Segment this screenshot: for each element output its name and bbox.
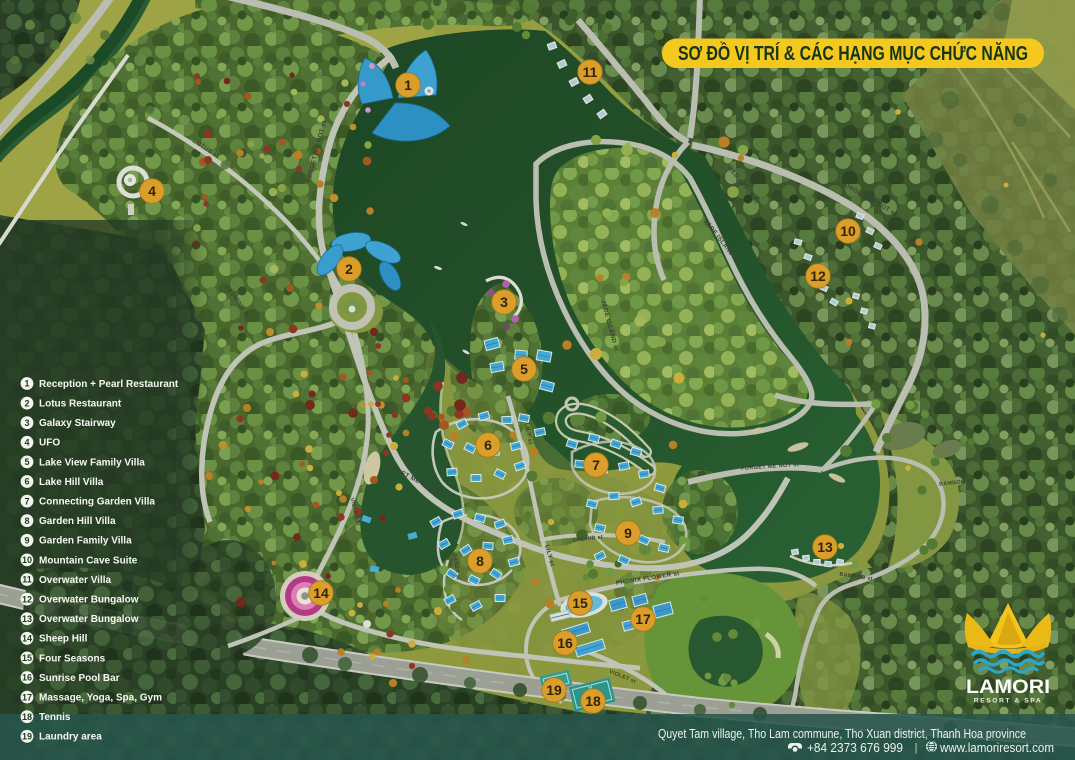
svg-text:Overwater Bungalow: Overwater Bungalow	[39, 595, 139, 606]
svg-text:14: 14	[22, 634, 32, 644]
svg-text:11: 11	[583, 64, 598, 80]
svg-text:4: 4	[24, 438, 29, 448]
svg-text:www.lamoriresort.com: www.lamoriresort.com	[939, 740, 1054, 755]
svg-text:Laundry area: Laundry area	[39, 732, 102, 743]
svg-text:Reception + Pearl Restaurant: Reception + Pearl Restaurant	[39, 379, 179, 390]
svg-text:17: 17	[22, 692, 32, 702]
svg-text:18: 18	[585, 693, 601, 709]
svg-text:Garden Family Villa: Garden Family Villa	[39, 536, 132, 547]
svg-text:Garden Hill Villa: Garden Hill Villa	[39, 516, 116, 527]
svg-text:13: 13	[817, 539, 833, 555]
svg-text:Mountain Cave Suite: Mountain Cave Suite	[39, 555, 138, 566]
svg-text:Lotus Restaurant: Lotus Restaurant	[39, 399, 122, 410]
svg-text:Galaxy Stairway: Galaxy Stairway	[39, 418, 116, 429]
svg-text:Sheep Hill: Sheep Hill	[39, 634, 88, 645]
svg-text:3: 3	[24, 418, 29, 428]
svg-text:17: 17	[635, 611, 651, 627]
svg-text:LAMORI: LAMORI	[966, 677, 1050, 698]
svg-text:7: 7	[592, 457, 600, 473]
svg-text:10: 10	[22, 555, 32, 565]
svg-text:14: 14	[313, 585, 329, 601]
svg-text:15: 15	[22, 653, 32, 663]
svg-text:7: 7	[24, 496, 29, 506]
svg-text:2: 2	[345, 261, 353, 277]
svg-text:15: 15	[572, 595, 588, 611]
svg-text:Four Seasons: Four Seasons	[39, 653, 106, 664]
svg-text:13: 13	[22, 614, 32, 624]
svg-text:9: 9	[24, 536, 29, 546]
svg-text:UFO: UFO	[39, 438, 60, 449]
svg-text:Overwater Bungalow: Overwater Bungalow	[39, 614, 139, 625]
svg-text:2: 2	[24, 398, 29, 408]
svg-text:|: |	[915, 742, 918, 754]
svg-text:RESORT & SPA: RESORT & SPA	[974, 698, 1042, 705]
svg-text:5: 5	[24, 457, 29, 467]
svg-text:+84 2373 676 999: +84 2373 676 999	[807, 740, 903, 755]
svg-text:Lake Hill Villa: Lake Hill Villa	[39, 477, 104, 488]
svg-text:Tennis: Tennis	[39, 712, 71, 723]
svg-text:Lake View Family Villa: Lake View Family Villa	[39, 457, 145, 468]
svg-text:18: 18	[22, 712, 32, 722]
svg-text:11: 11	[22, 575, 32, 585]
svg-text:Overwater Villa: Overwater Villa	[39, 575, 112, 586]
svg-text:9: 9	[624, 525, 632, 541]
svg-text:16: 16	[557, 635, 573, 651]
svg-text:12: 12	[810, 268, 826, 284]
svg-text:SƠ ĐỒ VỊ TRÍ & CÁC HẠNG MỤC CH: SƠ ĐỒ VỊ TRÍ & CÁC HẠNG MỤC CHỨC NĂNG	[678, 41, 1028, 65]
svg-text:Sunrise Pool Bar: Sunrise Pool Bar	[39, 673, 120, 684]
svg-text:6: 6	[24, 477, 29, 487]
svg-text:19: 19	[22, 732, 32, 742]
svg-text:3: 3	[500, 294, 508, 310]
svg-text:19: 19	[546, 682, 562, 698]
svg-text:Connecting Garden Villa: Connecting Garden Villa	[39, 497, 155, 508]
svg-text:8: 8	[24, 516, 29, 526]
svg-text:Massage, Yoga, Spa, Gym: Massage, Yoga, Spa, Gym	[39, 693, 162, 704]
svg-text:12: 12	[22, 594, 32, 604]
svg-text:Quyet Tam village, Tho Lam com: Quyet Tam village, Tho Lam commune, Tho …	[658, 726, 1026, 741]
svg-text:10: 10	[840, 223, 856, 239]
svg-text:6: 6	[484, 437, 492, 453]
svg-text:1: 1	[24, 379, 29, 389]
svg-text:16: 16	[22, 673, 32, 683]
svg-text:4: 4	[148, 183, 156, 199]
svg-text:8: 8	[476, 553, 484, 569]
svg-text:1: 1	[404, 77, 412, 93]
svg-text:5: 5	[520, 361, 528, 377]
